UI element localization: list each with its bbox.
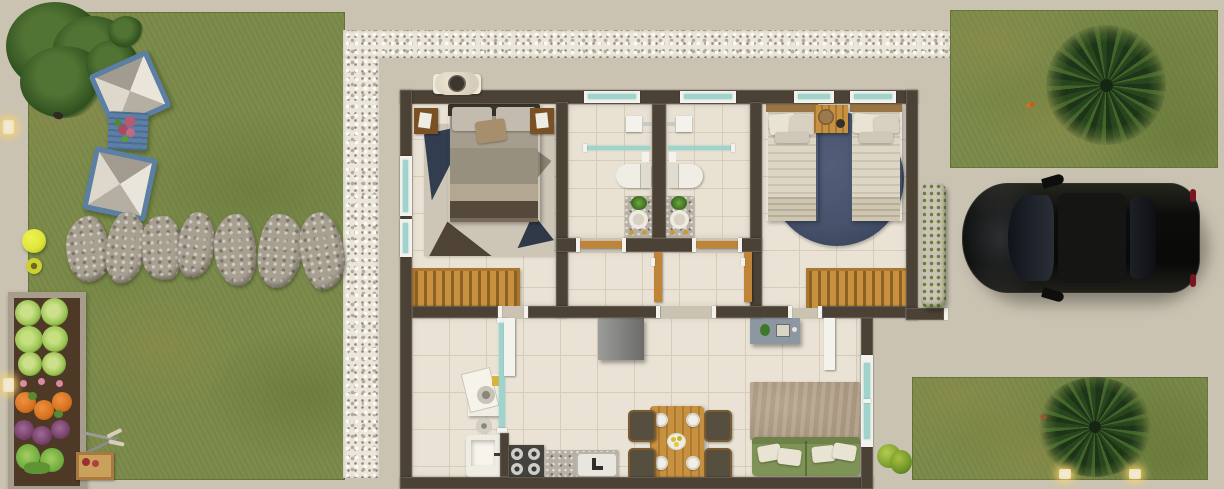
bedroom-2	[762, 102, 906, 308]
washer-drum	[477, 386, 495, 404]
bedroom2-bench	[806, 268, 906, 308]
interior-wall-south	[412, 306, 498, 318]
desk-tray	[818, 109, 834, 125]
door-jamb	[818, 306, 822, 318]
sofa-seat-split	[805, 441, 807, 476]
sofa-pillow	[832, 442, 857, 462]
raised-vegetable-bed	[8, 292, 86, 489]
double-bed	[448, 104, 540, 222]
path-light	[3, 120, 14, 134]
kitchen-sink	[576, 452, 618, 477]
console-plant	[760, 324, 770, 336]
lettuce	[18, 352, 42, 376]
dining-chair	[628, 448, 656, 477]
sofa	[752, 437, 860, 476]
refrigerator	[598, 318, 644, 360]
nightstand-left	[414, 108, 438, 134]
pumpkin	[34, 400, 54, 420]
lounge-daybed-2	[82, 146, 158, 222]
pumpkin-leaf	[28, 392, 37, 400]
gold-tap	[629, 230, 634, 235]
gravel-border-top	[343, 30, 950, 58]
butterfly	[1026, 102, 1035, 109]
door-jamb	[622, 238, 626, 252]
yellow-ball	[22, 229, 46, 253]
burner	[511, 463, 523, 475]
shower-glass-screen	[668, 146, 732, 150]
red-cabbage	[14, 420, 34, 440]
interior-wall-south	[822, 306, 906, 318]
lettuce	[42, 352, 66, 376]
exterior-wall-left	[400, 90, 412, 489]
washing-machine	[468, 374, 502, 416]
toilet	[668, 164, 703, 188]
gold-tap	[683, 230, 688, 235]
laundry-sink	[466, 435, 504, 477]
bedside-desk	[814, 105, 848, 133]
lettuce	[15, 326, 43, 353]
plate	[654, 456, 668, 470]
wall-stub-cap	[944, 308, 948, 320]
boxwood-hedge	[921, 183, 946, 308]
car-rear-window	[1130, 197, 1156, 279]
sliding-door-mullion	[863, 399, 871, 403]
bedroom1-door-open	[504, 318, 515, 376]
door-handle	[651, 258, 655, 266]
dining-table	[650, 406, 704, 477]
lettuce	[41, 298, 68, 326]
dining-chair	[704, 410, 732, 442]
shower-head	[626, 116, 642, 132]
shower-arm	[666, 122, 676, 126]
vanity-plant	[631, 196, 647, 210]
burner	[528, 463, 540, 475]
bathroom1-threshold	[580, 241, 624, 248]
bedroom-1	[412, 102, 556, 306]
laundry-basin	[471, 440, 495, 466]
toilet-tank	[640, 164, 651, 188]
door-jamb	[692, 238, 696, 252]
bed-blanket	[852, 197, 900, 221]
pink-flower	[56, 380, 63, 387]
rose-leaves	[121, 136, 128, 142]
ac-condenser	[433, 71, 481, 96]
shower-glass-screen	[586, 146, 650, 150]
vanity-plant	[671, 196, 687, 210]
parked-suv	[962, 179, 1202, 297]
bathroom-south-wall	[624, 238, 694, 252]
glass-screen-mount	[583, 144, 587, 152]
shower-head	[676, 116, 692, 132]
glass-screen-mount	[731, 144, 735, 152]
crate-produce	[92, 460, 99, 467]
crate-produce	[82, 458, 90, 466]
bathroom1-door-open	[654, 252, 662, 302]
gas-cooktop	[508, 445, 544, 477]
nightstand-right	[530, 108, 554, 134]
nightstand-book	[418, 112, 432, 129]
ac-fan	[448, 75, 466, 92]
living-sliding-door	[861, 355, 873, 447]
laundry-wall-stub	[500, 433, 509, 477]
desk-pot	[836, 119, 845, 128]
toilet-paper	[669, 152, 676, 162]
sofa-pillow	[777, 448, 802, 467]
burner	[528, 448, 540, 460]
window-glass	[403, 160, 408, 212]
palm-core	[1100, 79, 1113, 92]
window-glass	[588, 94, 636, 99]
fruit	[677, 436, 682, 441]
bedroom1-window	[400, 156, 412, 216]
console-decor	[792, 327, 797, 332]
gold-tap	[670, 230, 675, 235]
living-rug	[750, 382, 860, 440]
bush-foliage	[890, 450, 912, 474]
wall-end-cap	[656, 306, 660, 318]
bathroom-divider-wall	[652, 104, 666, 238]
window-glass	[403, 223, 408, 253]
tv-console	[750, 318, 800, 344]
toilet	[616, 164, 651, 188]
nightstand-book	[535, 112, 549, 128]
patio-bush	[877, 442, 913, 476]
door-jamb	[738, 238, 742, 252]
dining-chair	[628, 410, 656, 442]
lettuce	[42, 326, 68, 352]
kitchen-counter	[546, 450, 618, 477]
bed-lumbar-pillow	[775, 132, 809, 143]
red-cabbage	[32, 426, 52, 445]
bed-headboard	[766, 103, 818, 112]
path-light	[1059, 469, 1071, 479]
bathroom2-door-open	[744, 252, 752, 302]
twin-bed-right	[850, 103, 902, 221]
sink-faucet	[592, 466, 603, 470]
bathroom2-threshold	[696, 241, 740, 248]
bedroom2-window	[850, 91, 896, 103]
exterior-wall-right-upper	[906, 90, 918, 320]
window-glass	[798, 94, 830, 99]
pumpkin	[52, 392, 72, 412]
bedroom1-bathroom-wall	[556, 102, 568, 318]
path-light	[1129, 469, 1141, 479]
yard-wall-stub	[906, 308, 944, 320]
harvest-crate	[76, 452, 114, 480]
window-glass	[684, 94, 732, 99]
vanity-basin	[629, 210, 648, 229]
door-jamb	[576, 238, 580, 252]
gold-tap	[642, 230, 647, 235]
yellow-pail	[26, 258, 42, 274]
tree-canopy	[108, 16, 144, 48]
interior-wall-south	[528, 306, 660, 318]
door-handle	[741, 258, 745, 266]
bedroom2-door-open	[824, 318, 835, 370]
door-jamb	[788, 306, 792, 318]
accent-pillow	[475, 118, 508, 144]
pumpkin-leaf	[54, 410, 63, 418]
car-taillight	[1190, 274, 1196, 287]
lettuce	[15, 300, 41, 326]
bathroom-south-wall	[740, 238, 762, 252]
pink-flower	[38, 378, 45, 385]
toilet-paper	[642, 152, 649, 162]
fruit	[674, 442, 679, 447]
door-jamb	[524, 306, 528, 318]
burner	[511, 448, 523, 460]
plate	[686, 413, 700, 427]
bathroom-2	[666, 104, 750, 238]
toilet-tank	[668, 164, 679, 188]
shower-arm	[642, 122, 652, 126]
plate	[686, 456, 700, 470]
bedroom1-window	[400, 219, 412, 257]
bed-blanket	[768, 197, 816, 221]
gravel-border-vertical	[343, 30, 379, 478]
palm-core	[1089, 421, 1101, 433]
dining-chair	[704, 448, 732, 477]
vanity	[666, 196, 693, 236]
interior-wall-south	[716, 306, 790, 318]
vanity-basin	[670, 210, 689, 229]
bathroom1-window	[584, 91, 640, 103]
bedroom1-bench	[412, 268, 520, 306]
bathroom2-window	[680, 91, 736, 103]
shear-handle	[108, 439, 124, 446]
bathroom-1	[568, 104, 652, 238]
herbs	[24, 462, 50, 474]
butterfly-wing	[1030, 102, 1035, 107]
bed-lumbar-pillow	[859, 132, 893, 143]
bed-headboard	[850, 103, 902, 112]
garden-side-table	[107, 111, 149, 151]
door-jamb	[498, 306, 502, 318]
kitchen-living-room	[412, 318, 861, 477]
plate	[654, 413, 668, 427]
exterior-wall-bottom	[400, 477, 873, 489]
console-frame	[776, 324, 790, 337]
vanity	[625, 196, 652, 236]
floor-plan-render	[0, 0, 1224, 489]
car-roof	[1058, 193, 1126, 283]
twin-bed-left	[766, 103, 818, 221]
car-taillight	[1190, 189, 1196, 202]
wall-end-cap	[712, 306, 716, 318]
path-light	[3, 378, 14, 392]
red-cabbage	[51, 420, 70, 439]
car-windshield	[1008, 195, 1054, 281]
laundry-bucket	[476, 418, 492, 434]
pink-flower	[20, 380, 27, 387]
window-glass	[854, 94, 892, 99]
bedroom2-window	[794, 91, 834, 103]
